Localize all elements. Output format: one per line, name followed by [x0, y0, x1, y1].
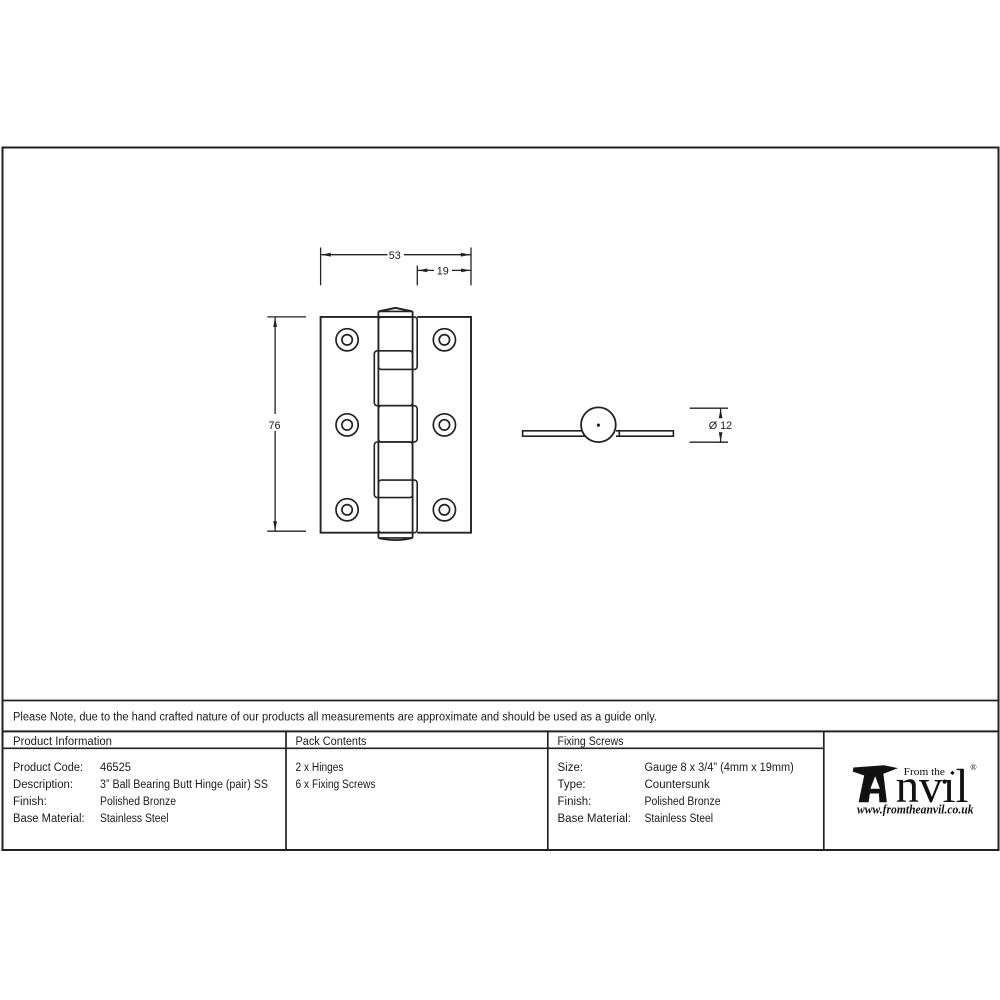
svg-text:®: ® [970, 762, 977, 772]
svg-text:From the: From the [904, 767, 946, 778]
svg-text:Base Material:: Base Material: [558, 813, 632, 825]
svg-text:Finish:: Finish: [558, 796, 592, 808]
svg-text:Type:: Type: [558, 779, 586, 791]
svg-text:Polished Bronze: Polished Bronze [100, 796, 176, 808]
svg-text:53: 53 [389, 250, 401, 262]
svg-text:Base Material:: Base Material: [13, 813, 85, 825]
svg-text:6 x Fixing Screws: 6 x Fixing Screws [296, 779, 376, 791]
svg-text:www.fromtheanvil.co.uk: www.fromtheanvil.co.uk [857, 803, 974, 817]
svg-text:Please Note, due to the hand c: Please Note, due to the hand crafted nat… [13, 712, 657, 724]
svg-text:Description:: Description: [13, 779, 73, 791]
svg-text:19: 19 [437, 266, 449, 278]
svg-text:Product Code:: Product Code: [13, 762, 83, 774]
svg-text:76: 76 [268, 420, 280, 432]
svg-text:2 x Hinges: 2 x Hinges [296, 762, 344, 774]
svg-text:46525: 46525 [100, 762, 131, 774]
svg-text:Size:: Size: [558, 762, 584, 774]
svg-text:Pack Contents: Pack Contents [296, 736, 367, 748]
svg-text:Countersunk: Countersunk [645, 779, 710, 791]
svg-text:3” Ball Bearing Butt Hinge (pa: 3” Ball Bearing Butt Hinge (pair) SS [100, 779, 268, 791]
svg-text:Gauge 8 x 3/4” (4mm x 19mm): Gauge 8 x 3/4” (4mm x 19mm) [645, 762, 794, 774]
svg-text:Product Information: Product Information [13, 736, 112, 748]
svg-text:Polished Bronze: Polished Bronze [645, 796, 721, 808]
svg-text:Ø 12: Ø 12 [709, 420, 732, 432]
svg-text:Stainless Steel: Stainless Steel [645, 813, 714, 825]
svg-text:Finish:: Finish: [13, 796, 47, 808]
svg-text:Stainless Steel: Stainless Steel [100, 813, 169, 825]
svg-text:Fixing Screws: Fixing Screws [558, 736, 624, 748]
